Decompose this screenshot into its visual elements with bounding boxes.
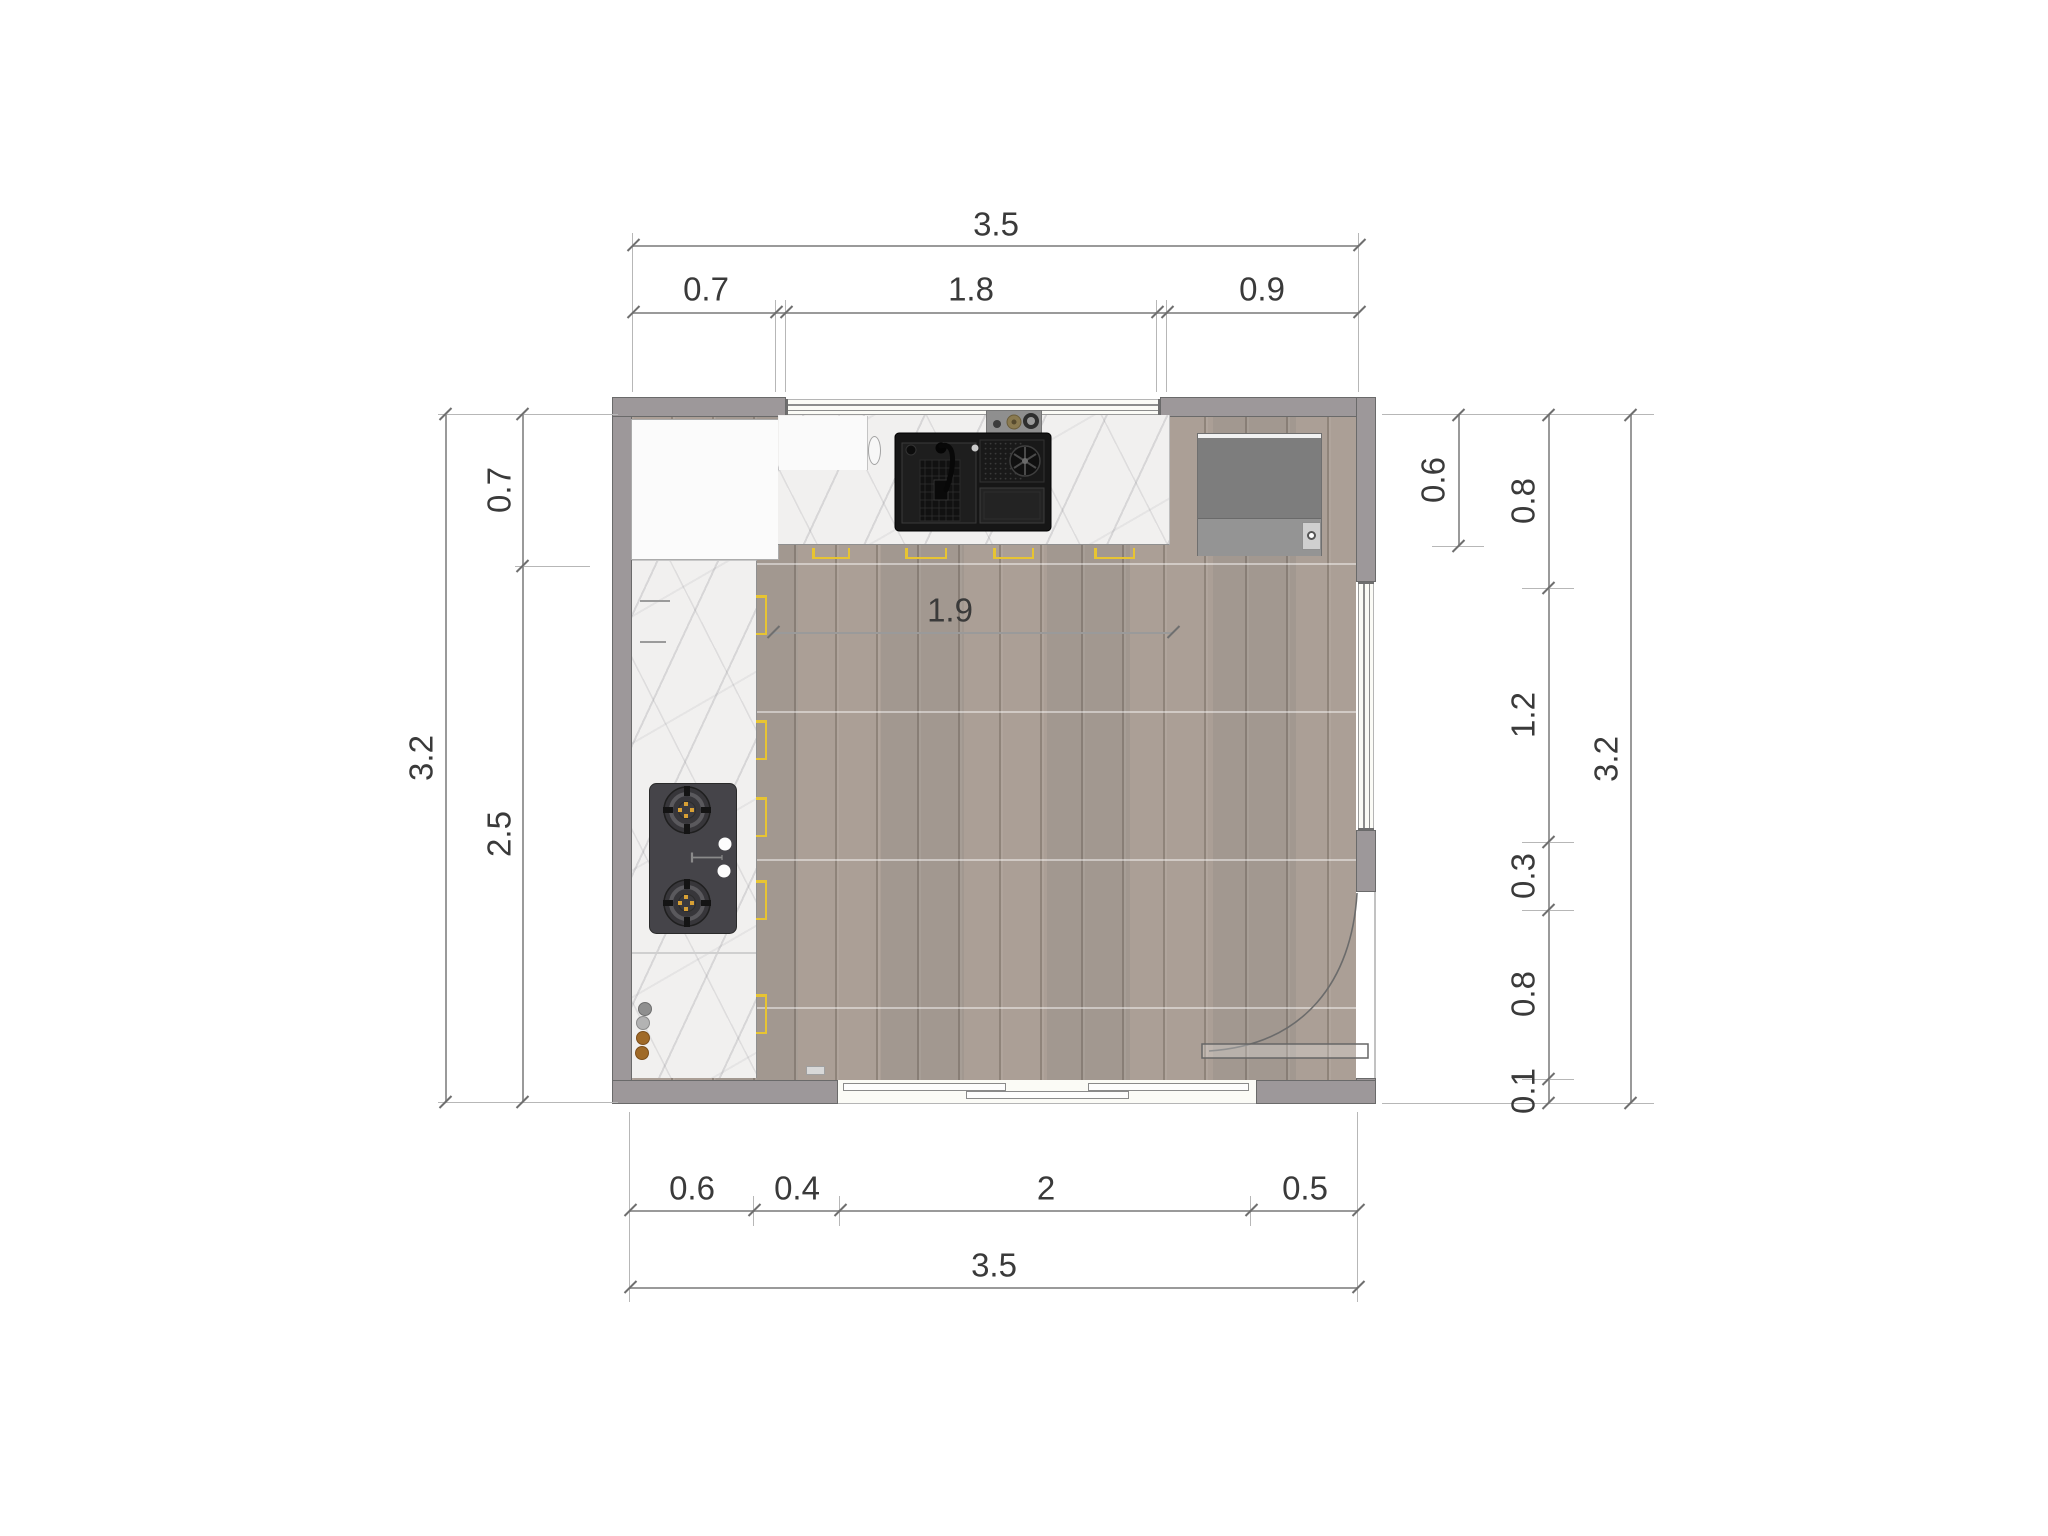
dim-label-top-total: 3.5 — [973, 208, 1019, 241]
dim-label-bottom-seg: 2 — [1037, 1172, 1055, 1205]
dim-label-top-seg: 1.8 — [948, 273, 994, 306]
wall-left — [612, 397, 632, 1104]
wall-right-upper-segment — [1356, 397, 1376, 582]
window-top — [786, 399, 1160, 415]
extension-line — [1357, 1112, 1358, 1302]
dim-label-left-seg: 2.5 — [483, 811, 516, 857]
cabinet-door-symbol — [756, 720, 767, 760]
window-right-frame-line — [1363, 582, 1365, 830]
dim-label-left-seg: 0.7 — [483, 467, 516, 513]
door-swing — [1190, 885, 1380, 1065]
dimension-line — [1630, 415, 1632, 1103]
marble-joint-line — [632, 952, 756, 954]
cabinet-door-symbol — [993, 548, 1034, 559]
floor-plan-canvas: 3.5 0.7 1.8 0.9 3.2 0.7 2.5 0.6 0.8 1.2 … — [0, 0, 2048, 1536]
counter-jar-steel — [638, 1002, 652, 1016]
refrigerator-top-highlight — [1198, 434, 1321, 438]
sliding-door-panel — [843, 1083, 1006, 1091]
counter-jar-bronze — [635, 1046, 649, 1060]
counter-oval-handle — [868, 436, 881, 465]
cabinet-door-symbol — [756, 880, 767, 920]
extension-line — [438, 1102, 618, 1103]
marble-detail-line — [640, 641, 666, 643]
dimension-line — [633, 245, 1359, 247]
dim-label-right-seg: 0.1 — [1507, 1068, 1540, 1114]
wall-right-mid-segment — [1356, 830, 1376, 892]
dim-label-bottom-total: 3.5 — [971, 1249, 1017, 1282]
sliding-door-panel — [1088, 1083, 1249, 1091]
dimension-line — [1458, 415, 1460, 546]
counter-jar-steel — [636, 1016, 650, 1030]
cabinet-door-symbol — [1094, 548, 1135, 559]
dimension-line — [773, 632, 1173, 634]
refrigerator — [1197, 433, 1322, 556]
wall-bottom-left-segment — [612, 1080, 838, 1104]
window-right — [1358, 582, 1374, 830]
dim-label-right-seg: 0.8 — [1507, 971, 1540, 1017]
window-right-jamb — [1358, 828, 1374, 830]
dim-label-bottom-seg: 0.5 — [1282, 1172, 1328, 1205]
dimension-line — [633, 312, 1359, 314]
marble-detail-line — [640, 600, 670, 602]
extension-line — [1382, 414, 1654, 415]
dim-label-right-seg: 1.2 — [1507, 692, 1540, 738]
window-top-jamb — [786, 399, 788, 415]
extension-line — [629, 1112, 630, 1302]
window-right-frame-line — [1369, 582, 1371, 830]
cabinet-door-symbol — [756, 994, 767, 1034]
wall-top-right-segment — [1160, 397, 1376, 417]
door-leaf — [1202, 1044, 1368, 1058]
dim-label-bottom-seg: 0.6 — [669, 1172, 715, 1205]
cabinet-door-symbol — [812, 548, 850, 559]
tall-cabinet — [631, 419, 779, 560]
hob-knob — [718, 865, 731, 878]
floor-vent — [806, 1066, 825, 1075]
dim-label-right-appliance: 0.6 — [1417, 457, 1450, 503]
dimension-line — [630, 1287, 1358, 1289]
counter-white-section — [779, 416, 868, 470]
hob-knob — [719, 838, 732, 851]
dim-label-top-seg: 0.7 — [683, 273, 729, 306]
dimension-line — [445, 414, 447, 1102]
dimension-line — [522, 414, 524, 1102]
window-right-jamb — [1358, 582, 1374, 584]
dim-label-left-total: 3.2 — [405, 735, 438, 781]
extension-line — [515, 566, 590, 567]
wall-valve-fixture — [986, 410, 1042, 434]
refrigerator-hinge-detail — [1302, 522, 1321, 550]
sliding-door-panel — [966, 1091, 1129, 1099]
window-top-frame-line — [786, 404, 1160, 406]
door-swing-arc — [1209, 893, 1357, 1051]
dim-label-right-seg: 0.8 — [1507, 478, 1540, 524]
gas-hob — [648, 782, 738, 935]
dim-label-top-seg: 0.9 — [1239, 273, 1285, 306]
wall-top-left-segment — [612, 397, 786, 417]
cabinet-door-symbol — [756, 595, 767, 635]
counter-jar-bronze — [636, 1031, 650, 1045]
extension-line — [438, 414, 618, 415]
cabinet-door-symbol — [905, 548, 947, 559]
dim-label-interior-counter: 1.9 — [927, 594, 973, 627]
kitchen-sink — [894, 432, 1052, 532]
dimension-line — [1548, 415, 1550, 1103]
dim-label-right-total: 3.2 — [1590, 736, 1623, 782]
window-top-jamb — [1158, 399, 1160, 415]
wall-bottom-right-segment — [1256, 1080, 1376, 1104]
dim-label-bottom-seg: 0.4 — [774, 1172, 820, 1205]
cabinet-door-symbol — [756, 797, 767, 837]
window-top-frame-line — [786, 410, 1160, 412]
dim-label-right-seg: 0.3 — [1507, 853, 1540, 899]
